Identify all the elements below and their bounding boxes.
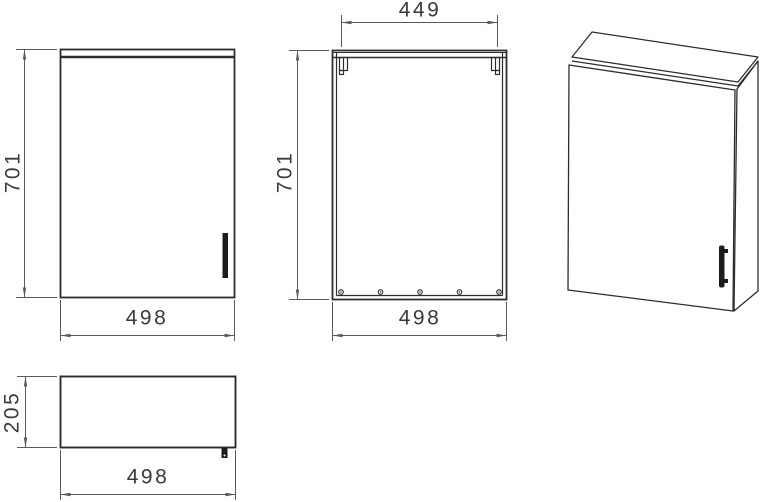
screw-holes: [339, 290, 502, 295]
dim-label-back-hanger-span: 449: [397, 0, 444, 21]
technical-drawing-canvas: 701 498 449 701 498 205 498: [0, 0, 762, 502]
iso-side-face: [734, 61, 758, 311]
dim-label-top-width: 498: [125, 467, 172, 488]
drawing-linework: [0, 0, 762, 502]
isometric-view: [568, 32, 758, 311]
back-cabinet-outline: [333, 51, 507, 300]
dim-label-front-height: 701: [3, 149, 24, 196]
back-view: [333, 51, 507, 300]
dim-label-top-depth: 205: [2, 389, 23, 436]
top-view: [61, 377, 236, 459]
dim-label-back-width: 498: [397, 308, 444, 329]
dim-label-back-height: 701: [275, 149, 296, 196]
front-view: [61, 50, 235, 298]
iso-door-face: [568, 65, 735, 311]
hanger-bracket-left: [340, 58, 348, 75]
top-view-handle-mark: [222, 448, 228, 458]
back-view-dimensions: [289, 15, 507, 341]
top-cabinet-outline: [61, 377, 236, 448]
dim-label-front-width: 498: [124, 308, 171, 329]
hanger-bracket-right: [492, 58, 500, 75]
front-door-handle: [223, 233, 229, 278]
front-cabinet-outline: [61, 50, 235, 298]
